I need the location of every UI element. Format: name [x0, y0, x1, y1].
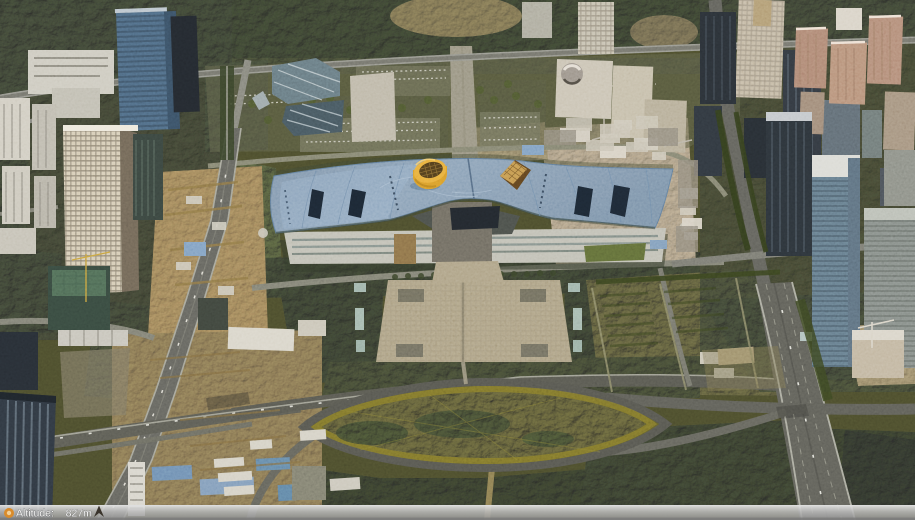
- svg-text:Altitude: 827m: Altitude: 827m: [16, 508, 92, 520]
